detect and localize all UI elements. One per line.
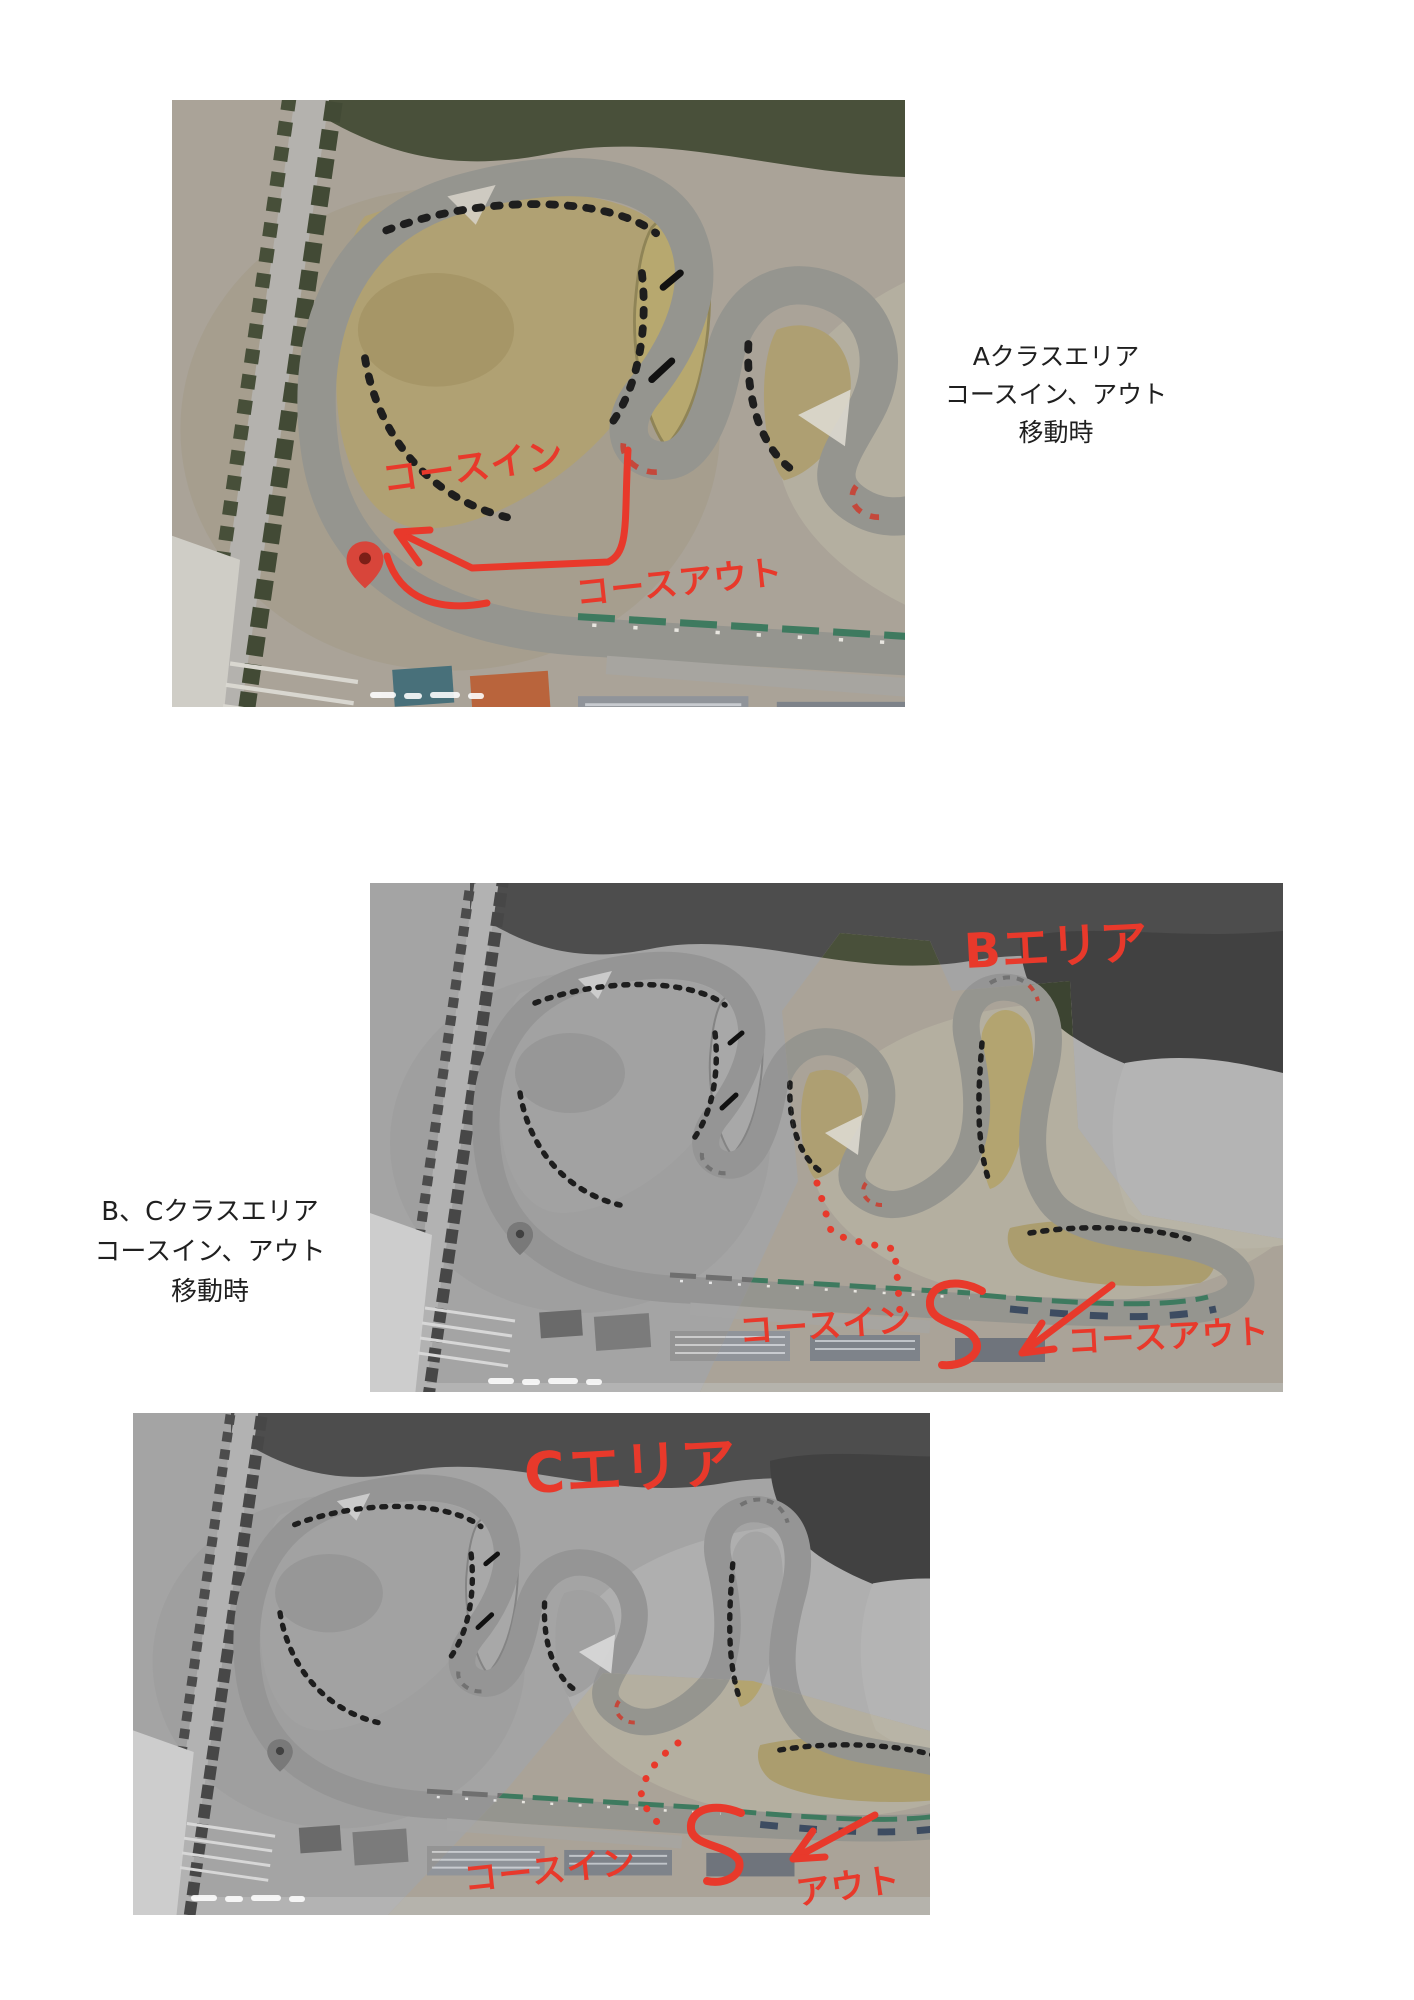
aerial-photo-a-svg: コースイン コースアウト bbox=[172, 100, 905, 707]
satellite-scene-color bbox=[172, 100, 905, 707]
aerial-photo-b-class: Bエリア コースイン コースアウト bbox=[370, 883, 1283, 1392]
caption-a-line1: Aクラスエリア bbox=[936, 338, 1176, 376]
aerial-photo-c-svg: Cエリア コースイン アウト bbox=[133, 1413, 930, 1915]
caption-a-class-area: Aクラスエリア コースイン、アウト 移動時 bbox=[936, 338, 1176, 452]
caption-a-line3: 移動時 bbox=[936, 414, 1176, 452]
caption-bc-class-area: B、Cクラスエリア コースイン、アウト 移動時 bbox=[60, 1192, 360, 1312]
caption-a-line2: コースイン、アウト bbox=[936, 376, 1176, 414]
aerial-photo-c-class: Cエリア コースイン アウト bbox=[133, 1413, 930, 1915]
b-area-handwriting: Bエリア bbox=[963, 914, 1150, 980]
annotated-track-document: コースイン コースアウト Aクラスエリア コースイン、アウト 移動時 B、Cクラ… bbox=[0, 0, 1414, 2000]
caption-bc-line3: 移動時 bbox=[60, 1272, 360, 1312]
caption-bc-line2: コースイン、アウト bbox=[60, 1232, 360, 1272]
aerial-photo-b-svg: Bエリア コースイン コースアウト bbox=[370, 883, 1283, 1392]
c-area-handwriting: Cエリア bbox=[522, 1431, 738, 1507]
aerial-photo-a-class: コースイン コースアウト bbox=[172, 100, 905, 707]
caption-bc-line1: B、Cクラスエリア bbox=[60, 1192, 360, 1232]
